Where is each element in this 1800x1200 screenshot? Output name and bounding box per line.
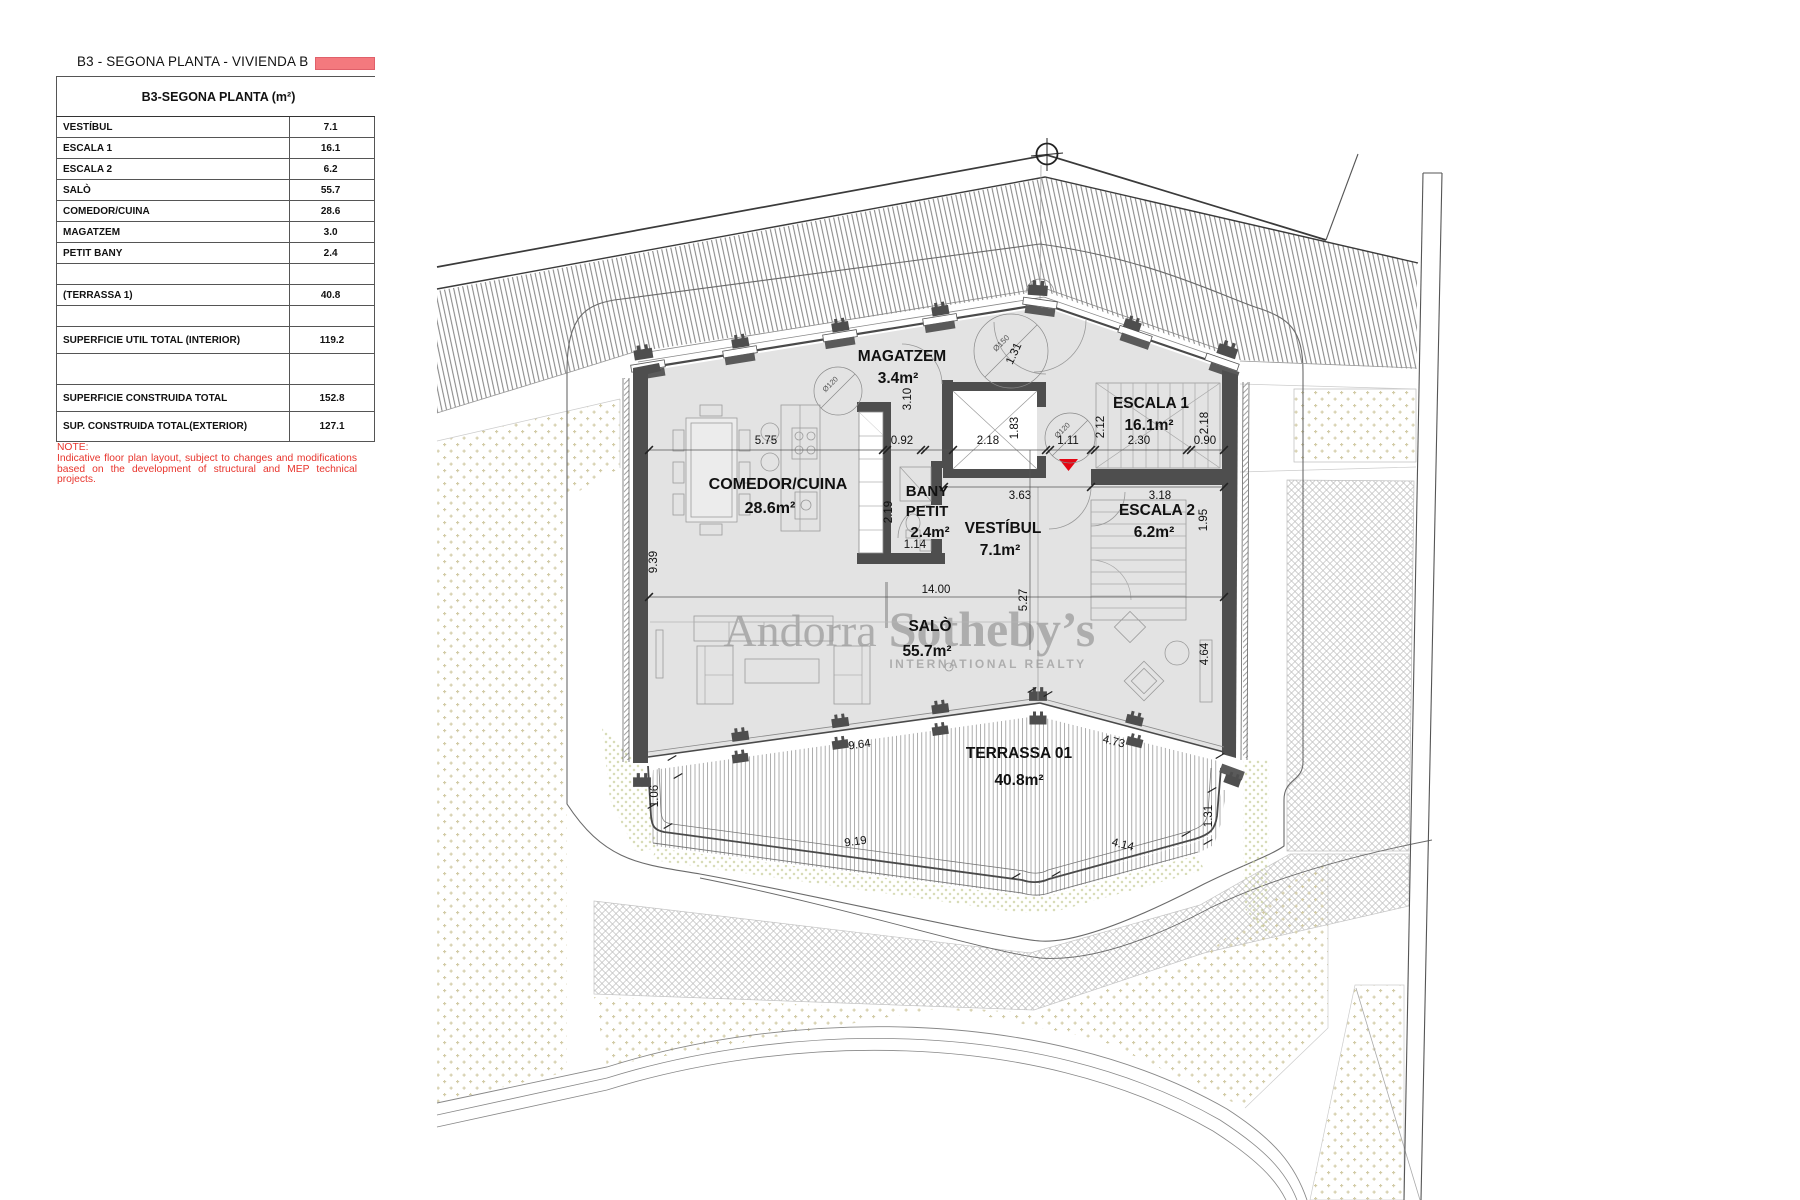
svg-text:3.18: 3.18	[1149, 490, 1171, 502]
svg-text:0.92: 0.92	[891, 435, 913, 447]
svg-text:16.1m²: 16.1m²	[1124, 417, 1173, 434]
svg-text:COMEDOR/CUINA: COMEDOR/CUINA	[709, 476, 848, 493]
svg-text:0.90: 0.90	[1194, 435, 1216, 447]
svg-text:1.31: 1.31	[1203, 805, 1215, 827]
svg-text:ESCALA 2: ESCALA 2	[1119, 502, 1195, 519]
svg-text:1.83: 1.83	[1009, 417, 1021, 439]
svg-text:14.00: 14.00	[922, 584, 951, 596]
svg-text:1.11: 1.11	[1057, 435, 1079, 447]
svg-text:ESCALA 1: ESCALA 1	[1113, 395, 1189, 412]
svg-text:1.95: 1.95	[1198, 509, 1210, 531]
svg-text:5.75: 5.75	[755, 435, 777, 447]
svg-text:4.64: 4.64	[1199, 642, 1211, 665]
svg-text:28.6m²: 28.6m²	[745, 500, 796, 517]
svg-text:PETIT: PETIT	[906, 503, 949, 520]
svg-text:9.39: 9.39	[648, 551, 660, 573]
svg-text:2.18: 2.18	[1199, 412, 1211, 434]
svg-text:MAGATZEM: MAGATZEM	[858, 348, 946, 365]
svg-text:40.8m²: 40.8m²	[994, 772, 1043, 789]
svg-text:7.1m²: 7.1m²	[980, 542, 1021, 559]
svg-text:Andorra: Andorra	[723, 605, 876, 656]
svg-text:2.19: 2.19	[883, 501, 895, 523]
svg-text:2.30: 2.30	[1128, 435, 1150, 447]
svg-text:2.12: 2.12	[1095, 416, 1107, 438]
svg-text:VESTÍBUL: VESTÍBUL	[965, 520, 1042, 537]
svg-text:3.10: 3.10	[902, 388, 914, 410]
svg-text:5.27: 5.27	[1018, 589, 1030, 611]
svg-text:3.63: 3.63	[1009, 490, 1031, 502]
svg-text:TERRASSA 01: TERRASSA 01	[966, 745, 1073, 762]
svg-text:BANY: BANY	[906, 483, 949, 500]
svg-text:2.4m²: 2.4m²	[910, 524, 949, 541]
svg-text:6.2m²: 6.2m²	[1134, 524, 1175, 541]
svg-text:SALÒ: SALÒ	[908, 617, 951, 635]
svg-text:55.7m²: 55.7m²	[902, 643, 951, 660]
svg-text:2.18: 2.18	[977, 435, 999, 447]
svg-text:3.4m²: 3.4m²	[878, 370, 919, 387]
